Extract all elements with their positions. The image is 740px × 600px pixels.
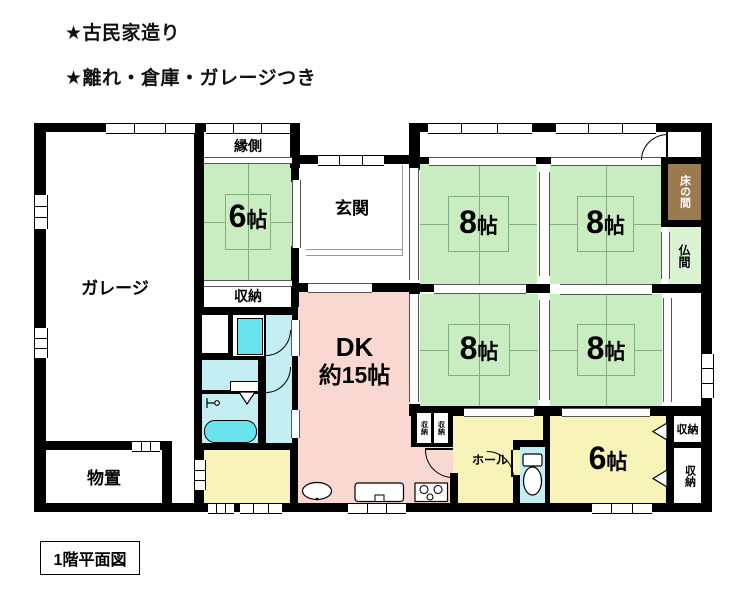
wall-segment xyxy=(536,157,551,164)
wall-segment xyxy=(420,284,434,292)
tatami6-top-label-wrap: 6帖 xyxy=(204,196,292,236)
sliding-door-marker xyxy=(539,172,550,276)
closet-wall-right: 収納 xyxy=(434,413,448,443)
genkan-label-wrap: 玄関 xyxy=(300,196,404,216)
wall-segment xyxy=(526,284,550,293)
hall-label: ホール xyxy=(472,451,508,468)
headline-2: ★離れ・倉庫・ガレージつき xyxy=(65,63,316,90)
closet-east-top-label: 収納 xyxy=(677,421,699,437)
tatami-seam xyxy=(479,376,480,406)
wall-segment xyxy=(652,284,701,293)
wall-segment xyxy=(40,441,132,450)
butsuma-label: 仏間 xyxy=(676,244,693,268)
genkan-step-line xyxy=(306,255,403,256)
closet-east-top: 収納 xyxy=(674,418,701,440)
wall-segment xyxy=(661,163,668,220)
garage-label: ガレージ xyxy=(81,274,149,299)
wall-segment xyxy=(298,283,308,292)
passage-garage xyxy=(172,441,194,503)
dk-label: DK 約15帖 xyxy=(298,325,411,397)
tatami-seam xyxy=(606,164,607,196)
window-marker xyxy=(34,195,48,229)
sliding-door-marker xyxy=(661,232,670,279)
window-marker xyxy=(240,503,282,514)
shower-faucet-icon xyxy=(205,396,221,410)
closet-east-bottom-label: 収納 xyxy=(682,465,698,487)
tatami-seam xyxy=(479,252,480,284)
engawa-label: 縁側 xyxy=(234,136,262,156)
sliding-door-marker xyxy=(560,284,652,295)
genkan-label: 玄関 xyxy=(335,194,369,219)
kitchen-sink-icon xyxy=(354,482,405,503)
sliding-door-marker xyxy=(539,300,550,400)
laundry-left-cell xyxy=(202,315,228,353)
closet-mid-label: 収納 xyxy=(234,286,262,306)
window-marker xyxy=(701,354,714,398)
tatami-seam xyxy=(606,252,607,284)
genkan-step-line xyxy=(306,249,403,250)
t8bl-label-wrap: 8帖 xyxy=(420,326,538,370)
room-dk xyxy=(298,292,411,503)
headline-1: ★古民家造り xyxy=(65,18,180,45)
window-marker xyxy=(318,155,384,166)
tatami6-bottom-label-wrap: 6帖 xyxy=(550,436,666,480)
washer-pan-icon xyxy=(237,318,263,355)
tatami-seam xyxy=(606,294,607,324)
room-tokonoma: 床の間 xyxy=(668,163,701,220)
sliding-door-marker xyxy=(409,168,419,280)
wall-segment xyxy=(383,155,411,164)
sliding-door-marker xyxy=(291,410,300,438)
tatami6-bottom-label: 6帖 xyxy=(589,442,628,474)
window-marker xyxy=(132,441,160,452)
sliding-door-marker xyxy=(663,298,672,402)
t8bl-label: 8帖 xyxy=(460,332,499,364)
wall-segment xyxy=(420,157,429,164)
tatami-seam xyxy=(479,294,480,324)
wall-segment xyxy=(296,123,413,156)
tatami-seam xyxy=(248,162,249,194)
sliding-door-marker xyxy=(464,408,534,417)
wall-segment xyxy=(513,447,520,450)
window-marker xyxy=(34,328,48,358)
wall-segment xyxy=(661,220,701,227)
closet-wall-right-label: 収納 xyxy=(438,421,445,435)
t8br-label-wrap: 8帖 xyxy=(550,326,662,370)
tokonoma-label: 床の間 xyxy=(677,175,693,208)
monooki-label-wrap: 物置 xyxy=(46,466,162,486)
closet-east-bottom: 収納 xyxy=(678,448,701,503)
wall-segment xyxy=(162,450,172,512)
window-marker xyxy=(206,123,290,134)
kitchen-basin-icon xyxy=(301,481,334,503)
wall-segment xyxy=(291,246,299,307)
sliding-door-marker xyxy=(434,284,526,294)
room-butsuma: 仏間 xyxy=(668,227,701,284)
wall-segment xyxy=(290,450,298,503)
t8tl-label: 8帖 xyxy=(459,206,498,238)
folding-door-icon xyxy=(238,391,256,405)
window-marker xyxy=(556,123,656,134)
sliding-door-marker xyxy=(204,157,292,164)
room-yellow-sw xyxy=(204,450,290,503)
closet-wall-left: 収納 xyxy=(417,413,431,443)
door-leaf xyxy=(666,132,668,159)
window-marker xyxy=(106,123,195,134)
floor-caption-box: 1階平面図 xyxy=(40,541,140,575)
wall-segment xyxy=(661,157,712,164)
window-marker xyxy=(194,460,206,490)
bathtub-icon xyxy=(204,420,257,443)
room-genkan xyxy=(300,164,409,283)
sliding-door-marker xyxy=(429,157,536,166)
wall-segment xyxy=(409,283,420,294)
wall-segment xyxy=(513,475,520,503)
tatami-seam xyxy=(606,376,607,406)
wall-segment xyxy=(34,123,46,512)
tatami-seam xyxy=(248,250,249,282)
tatami6-top-label: 6帖 xyxy=(229,200,268,232)
hall-label-wrap: ホール xyxy=(450,451,530,467)
t8br-label: 8帖 xyxy=(587,332,626,364)
door-leaf xyxy=(425,448,453,450)
closet-wall-left-label: 収納 xyxy=(421,421,428,435)
floor-plan-page: ★古民家造り ★離れ・倉庫・ガレージつき 床の間 仏間 収納 収納 xyxy=(0,0,740,600)
sliding-door-marker xyxy=(308,283,372,293)
window-marker xyxy=(592,503,652,514)
wall-segment xyxy=(701,123,712,512)
t8tr-label: 8帖 xyxy=(586,206,625,238)
engawa-label-wrap: 縁側 xyxy=(204,137,292,154)
sliding-door-marker xyxy=(562,408,650,417)
window-marker xyxy=(348,503,406,514)
stove-icon xyxy=(414,482,449,503)
monooki-label: 物置 xyxy=(87,464,121,489)
garage-label-wrap: ガレージ xyxy=(60,276,170,296)
wall-segment xyxy=(160,441,172,450)
t8tr-label-wrap: 8帖 xyxy=(550,200,661,244)
floor-caption: 1階平面図 xyxy=(54,546,127,570)
window-marker xyxy=(428,123,532,134)
t8tl-label-wrap: 8帖 xyxy=(420,200,537,244)
tatami-seam xyxy=(479,164,480,196)
window-marker xyxy=(208,503,234,514)
closet-mid-label-wrap: 収納 xyxy=(204,287,292,305)
wall-segment xyxy=(296,155,320,164)
